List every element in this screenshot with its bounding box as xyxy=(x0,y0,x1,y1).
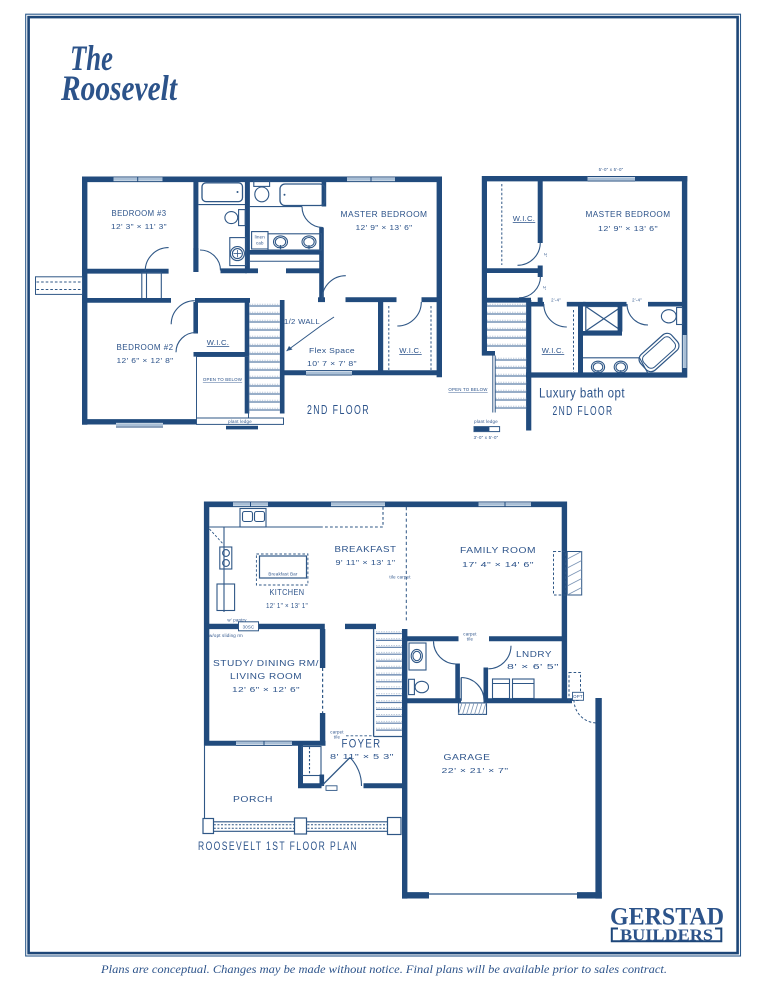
svg-text:3'-0" x 5'-0": 3'-0" x 5'-0" xyxy=(474,435,499,440)
svg-text:12' 6" × 12' 8": 12' 6" × 12' 8" xyxy=(117,356,174,365)
svg-text:Plans are conceptual. Changes: Plans are conceptual. Changes may be mad… xyxy=(100,964,667,976)
svg-text:tile: tile xyxy=(334,735,341,740)
svg-text:2': 2' xyxy=(542,286,547,290)
svg-text:W.I.C.: W.I.C. xyxy=(542,346,564,355)
svg-text:FOYER: FOYER xyxy=(342,739,382,751)
svg-text:tile: tile xyxy=(467,637,474,642)
svg-text:W.I.C.: W.I.C. xyxy=(513,214,535,223)
svg-text:30SC: 30SC xyxy=(243,624,255,629)
svg-text:2ND FLOOR: 2ND FLOOR xyxy=(307,403,370,417)
svg-text:8' 11" × 5 3": 8' 11" × 5 3" xyxy=(330,752,394,761)
svg-text:OPEN TO BELOW: OPEN TO BELOW xyxy=(448,387,488,392)
svg-text:22' × 21' × 7": 22' × 21' × 7" xyxy=(442,766,509,775)
svg-text:STUDY/ DINING RM/: STUDY/ DINING RM/ xyxy=(213,658,319,668)
svg-text:BREAKFAST: BREAKFAST xyxy=(335,544,397,554)
svg-text:w/opt sliding rm: w/opt sliding rm xyxy=(209,633,243,638)
svg-text:W.I.C.: W.I.C. xyxy=(207,338,229,347)
svg-text:5'-0" x 5'-0": 5'-0" x 5'-0" xyxy=(599,167,624,172)
svg-text:tile carpet: tile carpet xyxy=(389,575,411,580)
svg-text:OPEN TO BELOW: OPEN TO BELOW xyxy=(203,377,243,382)
svg-text:12' 9" × 13' 6": 12' 9" × 13' 6" xyxy=(356,223,413,232)
svg-text:2ND FLOOR: 2ND FLOOR xyxy=(553,404,614,418)
svg-text:12' 6" × 12' 6": 12' 6" × 12' 6" xyxy=(232,685,300,694)
svg-text:LNDRY: LNDRY xyxy=(516,649,552,659)
svg-text:Breakfast Bar: Breakfast Bar xyxy=(268,572,298,577)
svg-text:9' 11" × 13' 1": 9' 11" × 13' 1" xyxy=(336,558,396,567)
svg-text:2': 2' xyxy=(543,253,548,257)
svg-text:plant ledge: plant ledge xyxy=(474,419,498,424)
svg-text:MASTER BEDROOM: MASTER BEDROOM xyxy=(586,209,671,219)
svg-text:Flex Space: Flex Space xyxy=(309,346,355,355)
svg-text:Luxury bath opt: Luxury bath opt xyxy=(539,386,625,401)
svg-text:cab: cab xyxy=(256,241,264,246)
svg-text:1/2 WALL: 1/2 WALL xyxy=(284,317,320,326)
svg-text:ROOSEVELT 1ST FLOOR PLAN: ROOSEVELT 1ST FLOOR PLAN xyxy=(198,839,358,853)
svg-text:12' 3" × 11' 3": 12' 3" × 11' 3" xyxy=(111,222,167,231)
svg-text:W.I.C.: W.I.C. xyxy=(399,346,421,355)
svg-text:FAMILY ROOM: FAMILY ROOM xyxy=(460,545,536,555)
svg-text:10' 7 × 7' 8": 10' 7 × 7' 8" xyxy=(307,359,357,368)
svg-text:LIVING ROOM: LIVING ROOM xyxy=(230,671,302,681)
svg-text:MASTER BEDROOM: MASTER BEDROOM xyxy=(341,209,428,219)
svg-text:BUILDERS: BUILDERS xyxy=(620,926,713,945)
svg-text:plant ledge: plant ledge xyxy=(228,419,252,424)
svg-text:OPT: OPT xyxy=(573,694,583,699)
svg-text:BEDROOM #2: BEDROOM #2 xyxy=(117,342,174,352)
svg-text:PORCH: PORCH xyxy=(233,794,273,804)
svg-text:8' × 6' 5": 8' × 6' 5" xyxy=(507,662,559,671)
svg-text:KITCHEN: KITCHEN xyxy=(270,587,305,597)
svg-text:GARAGE: GARAGE xyxy=(444,752,491,762)
svg-text:17' 4" × 14' 6": 17' 4" × 14' 6" xyxy=(462,560,534,569)
svg-text:BEDROOM #3: BEDROOM #3 xyxy=(112,208,167,218)
svg-text:Roosevelt: Roosevelt xyxy=(60,68,178,108)
svg-text:12' 9" × 13' 6": 12' 9" × 13' 6" xyxy=(598,224,658,233)
svg-text:12' 1" × 13' 1": 12' 1" × 13' 1" xyxy=(266,601,308,610)
svg-text:2'-4": 2'-4" xyxy=(632,298,642,303)
svg-text:linen: linen xyxy=(255,235,266,240)
svg-text:2'-4": 2'-4" xyxy=(551,298,561,303)
